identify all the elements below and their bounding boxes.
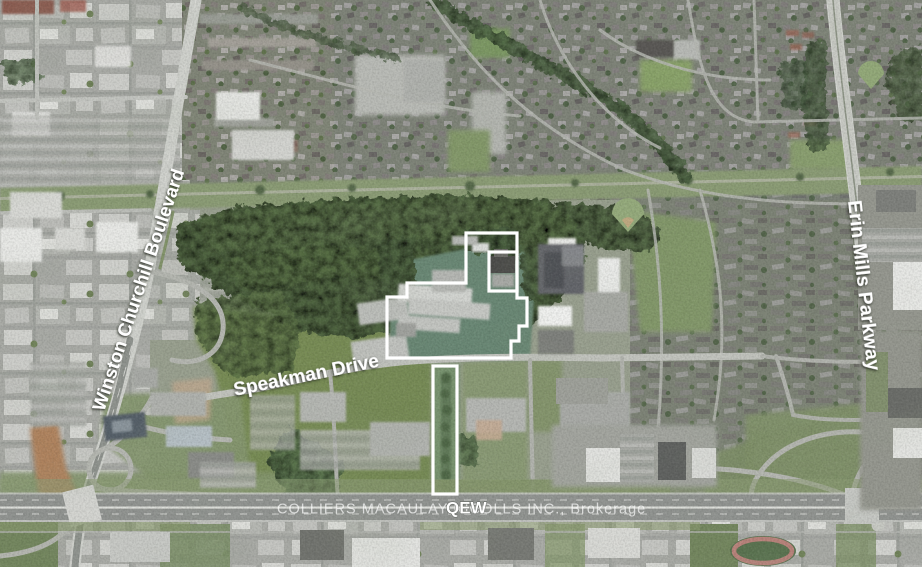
svg-text:QEW: QEW [446,499,488,518]
